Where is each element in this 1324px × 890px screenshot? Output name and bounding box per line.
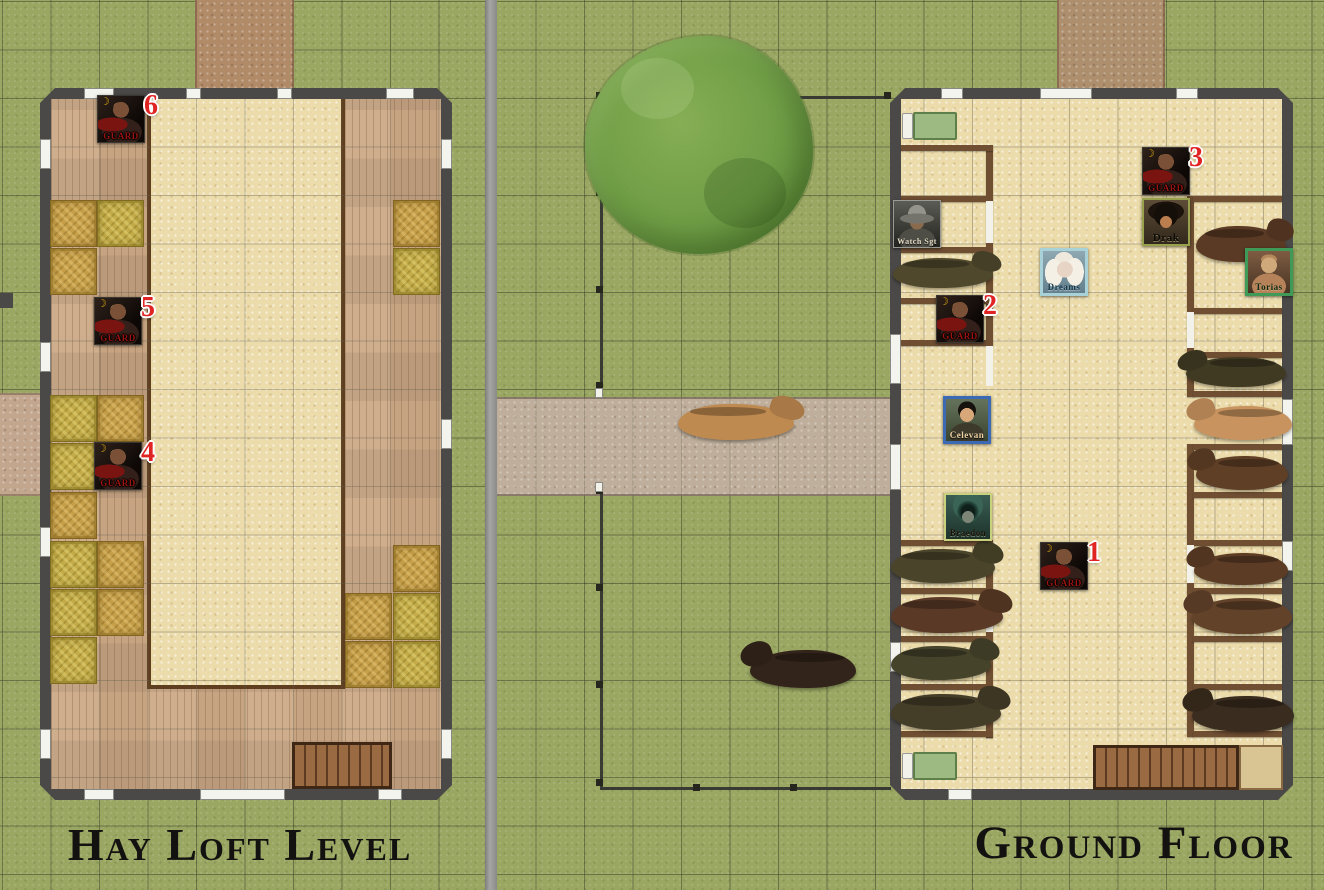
hay-bale [345, 641, 392, 688]
hay-bale [393, 593, 440, 640]
crescent-status-icon: ☽ [939, 295, 949, 308]
stall-gate [986, 346, 993, 386]
hay-bale [97, 200, 144, 247]
tree [585, 36, 813, 254]
crescent-status-icon: ☽ [100, 95, 110, 108]
gate-post [595, 388, 603, 398]
horse-stall-b7[interactable] [1192, 696, 1294, 732]
token-drak[interactable]: Drak [1142, 198, 1190, 246]
hay-bale [50, 443, 97, 490]
token-number-badge: 2 [983, 290, 997, 322]
horse-stall-b6[interactable] [1192, 598, 1292, 634]
token-guard-5[interactable]: ☽Guard5 [94, 297, 142, 345]
horse-stall-b5[interactable] [1194, 553, 1288, 585]
hayloft-center-floor [147, 99, 345, 689]
hay-bale [345, 593, 392, 640]
horse-path[interactable] [678, 404, 794, 440]
token-guard-2[interactable]: ☽Guard2 [936, 295, 984, 343]
crescent-status-icon: ☽ [97, 442, 107, 455]
groundfloor-title: Ground Floor [945, 816, 1323, 870]
token-label: Guard [96, 131, 146, 142]
hay-bale [393, 200, 440, 247]
horse-stall-b4[interactable] [1196, 456, 1288, 490]
horse-stall-a4[interactable] [891, 646, 991, 680]
token-number-badge: 3 [1189, 142, 1203, 174]
crescent-status-icon: ☽ [1145, 147, 1155, 160]
stable-west-door [890, 444, 901, 490]
hay-bale [50, 589, 97, 636]
token-label: Drak [1142, 233, 1190, 244]
token-label: Torias [1246, 282, 1292, 293]
token-torias[interactable]: Torias [1245, 248, 1293, 296]
token-number-badge: 4 [141, 437, 155, 469]
gate-post [595, 482, 603, 492]
hay-bale [393, 248, 440, 295]
horse-stall-b2[interactable] [1186, 357, 1286, 387]
horse-stall-a1[interactable] [893, 258, 993, 288]
token-number-badge: 5 [141, 292, 155, 324]
hay-bale [50, 248, 97, 295]
token-celevan[interactable]: Celevan [943, 396, 991, 444]
hay-bale [393, 641, 440, 688]
token-braedon[interactable]: Braedon [944, 493, 992, 541]
stable-stair-landing [1239, 745, 1283, 790]
token-number-badge: 6 [144, 90, 158, 122]
crescent-status-icon: ☽ [97, 297, 107, 310]
token-label: Guard [1039, 578, 1089, 589]
hayloft-staircase [292, 742, 392, 789]
hayloft-south-door [200, 789, 285, 800]
wall-stub [0, 293, 13, 308]
hay-bale [97, 395, 144, 442]
hay-bale [97, 541, 144, 588]
token-number-badge: 1 [1087, 537, 1101, 569]
horse-stall-a5[interactable] [891, 694, 1001, 730]
crescent-status-icon: ☽ [1043, 542, 1053, 555]
hay-bale [50, 200, 97, 247]
hay-bale [50, 637, 97, 684]
token-guard-1[interactable]: ☽Guard1 [1040, 542, 1088, 590]
map-divider [485, 0, 497, 890]
token-dreams[interactable]: Dreams [1040, 248, 1088, 296]
stable-staircase [1093, 745, 1239, 790]
token-label: Guard [93, 333, 143, 344]
stable-north-door [1040, 88, 1092, 99]
horse-stall-b3[interactable] [1194, 406, 1292, 440]
path-north-stable [1057, 0, 1165, 89]
token-label: Celevan [944, 430, 990, 441]
horse-stall-a3[interactable] [891, 597, 1003, 633]
token-label: Guard [935, 331, 985, 342]
path-north-hayloft [195, 0, 294, 89]
hayloft-title: Hay Loft Level [55, 818, 425, 871]
token-watch-sgt[interactable]: Watch Sgt [893, 200, 941, 248]
battle-map-stage: ☽Guard6☽Guard5☽Guard4Watch Sgt☽Guard2Cel… [0, 0, 1324, 890]
hay-bale [97, 589, 144, 636]
hay-bale [50, 541, 97, 588]
token-guard-3[interactable]: ☽Guard3 [1142, 147, 1190, 195]
stall-gate [1187, 312, 1194, 348]
token-label: Guard [93, 478, 143, 489]
path-west-hayloft [0, 393, 41, 496]
token-label: Braedon [944, 528, 992, 539]
token-guard-4[interactable]: ☽Guard4 [94, 442, 142, 490]
token-guard-6[interactable]: ☽Guard6 [97, 95, 145, 143]
hay-bale [50, 492, 97, 539]
horse-stall-a2[interactable] [891, 549, 995, 583]
hay-bale [50, 395, 97, 442]
stall-gate [986, 201, 993, 243]
hay-bale [393, 545, 440, 592]
token-label: Guard [1141, 183, 1191, 194]
token-label: Dreams [1041, 282, 1087, 293]
horse-yard[interactable] [750, 650, 856, 688]
token-label: Watch Sgt [892, 236, 942, 247]
